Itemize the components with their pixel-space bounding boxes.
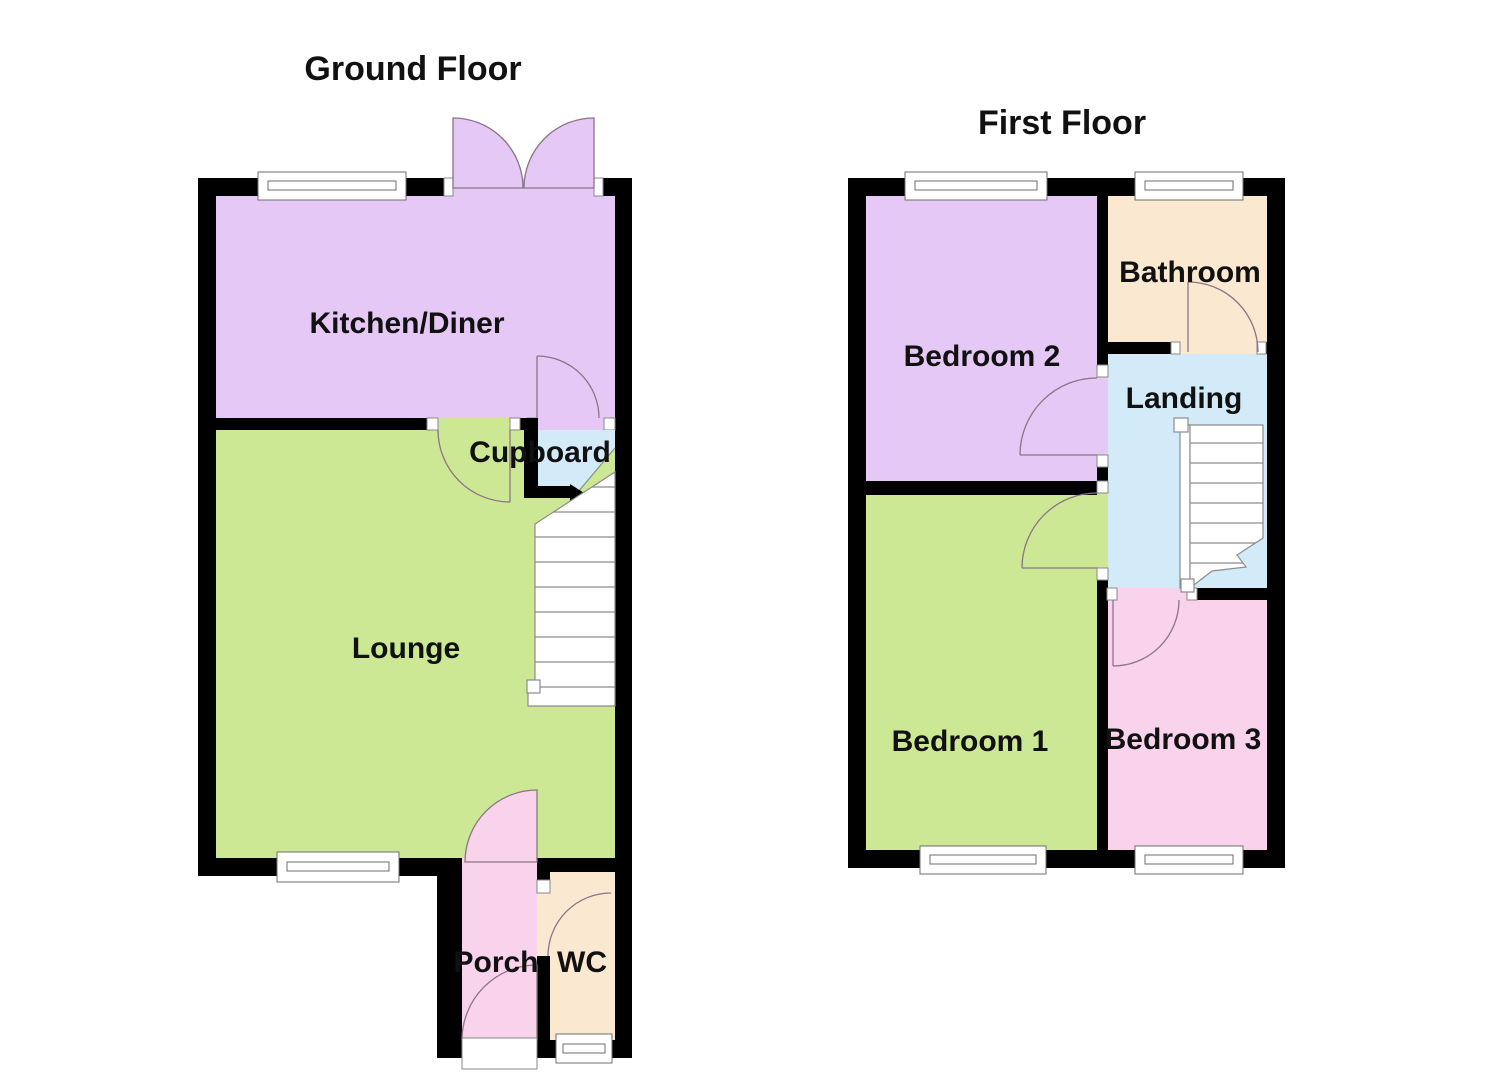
bedroom3-door-opening	[1117, 588, 1187, 600]
cupboard-wall-bottom	[524, 486, 570, 498]
door-jamb	[604, 418, 615, 430]
ground-floor-title: Ground Floor	[304, 50, 521, 88]
door-jamb	[1097, 481, 1108, 493]
stair-newel-post	[1174, 418, 1188, 432]
label-cupboard: Cupboard	[469, 436, 611, 469]
french-door-right-swing	[524, 118, 594, 188]
room-bedroom2	[866, 196, 1097, 481]
label-bedroom1: Bedroom 1	[892, 725, 1049, 758]
label-landing: Landing	[1126, 382, 1243, 415]
label-lounge: Lounge	[352, 632, 460, 665]
door-jamb	[1107, 588, 1117, 600]
kitchen-window	[258, 172, 406, 200]
floorplan-page: Ground Floor Kitchen/Diner Cupboard Loun…	[0, 0, 1485, 1080]
stair-rail	[1180, 425, 1190, 588]
bathroom-window	[1135, 172, 1243, 200]
lounge-door-opening	[438, 418, 510, 430]
door-jamb	[594, 178, 603, 196]
first-floor-title: First Floor	[978, 104, 1146, 142]
bedroom3-window	[1135, 846, 1243, 874]
wc-window	[556, 1034, 612, 1063]
bathroom-door-opening	[1180, 342, 1258, 354]
stair-newel-post	[527, 680, 540, 693]
door-jamb	[510, 418, 520, 430]
bedroom1-door-opening	[1097, 493, 1108, 568]
door-jamb	[1171, 342, 1180, 354]
bedroom1-window	[920, 846, 1046, 874]
ground-floor-plan: Ground Floor Kitchen/Diner Cupboard Loun…	[198, 50, 632, 1069]
lounge-window	[277, 852, 399, 882]
room-bedroom1	[866, 495, 1097, 850]
bedroom2-window	[905, 172, 1047, 200]
first-floor-plan: First Floor Bedroom 2 Bathroom Landing B…	[848, 104, 1285, 874]
french-door-left-swing	[453, 118, 523, 188]
kitchen-hall-door-opening	[537, 418, 604, 430]
label-bedroom2: Bedroom 2	[904, 340, 1061, 373]
door-jamb	[537, 880, 550, 893]
floorplan-drawing: Ground Floor Kitchen/Diner Cupboard Loun…	[0, 0, 1485, 1080]
door-jamb	[444, 178, 453, 196]
door-jamb	[1097, 455, 1108, 467]
door-jamb	[427, 418, 438, 430]
label-wc: WC	[557, 946, 607, 979]
front-door-threshold	[462, 1038, 537, 1069]
door-jamb	[1097, 568, 1108, 580]
label-porch: Porch	[453, 946, 538, 979]
label-kitchen-diner: Kitchen/Diner	[309, 307, 504, 340]
label-bathroom: Bathroom	[1119, 256, 1261, 289]
label-bedroom3: Bedroom 3	[1105, 723, 1262, 756]
bedroom2-door-opening	[1097, 377, 1108, 455]
stair-newel-post	[1181, 579, 1194, 592]
door-jamb	[1097, 365, 1108, 377]
